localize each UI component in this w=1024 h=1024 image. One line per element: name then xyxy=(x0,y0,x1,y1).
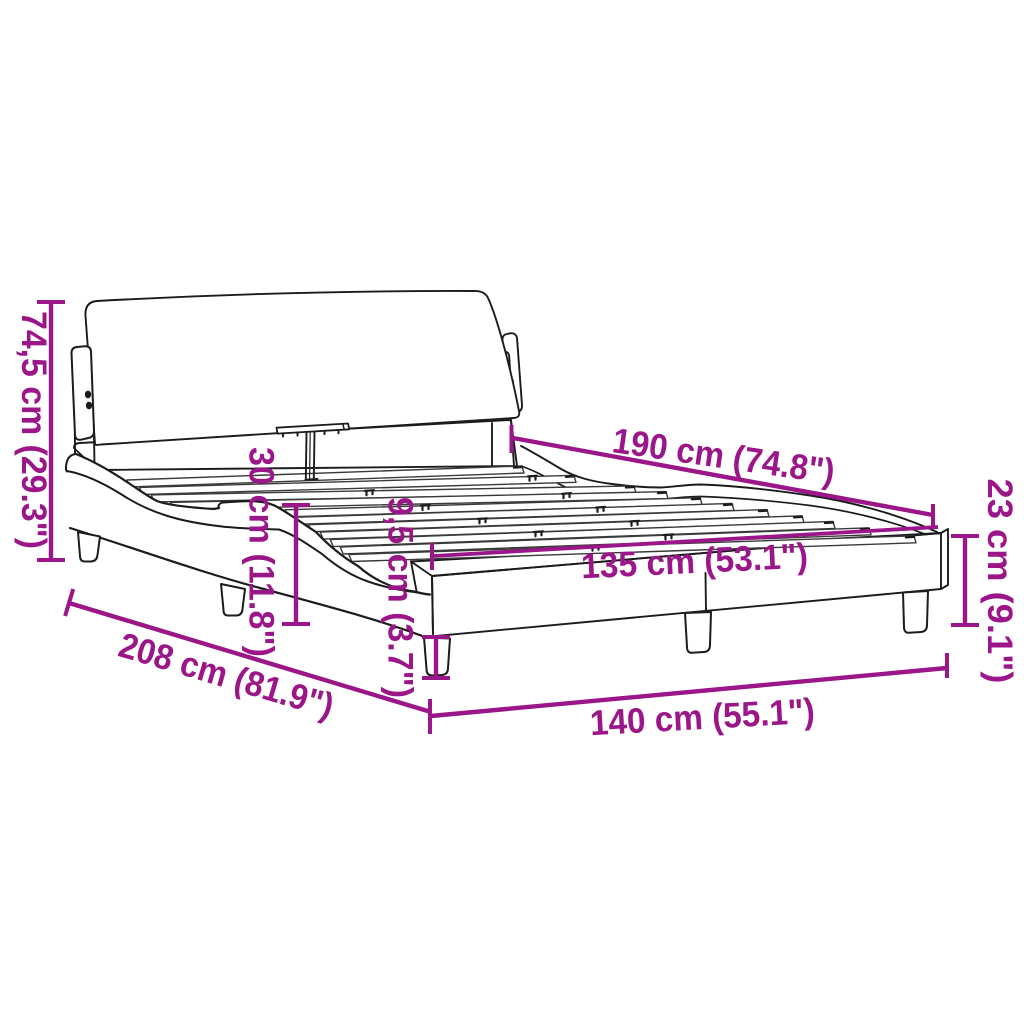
svg-text:23 cm (9.1"): 23 cm (9.1") xyxy=(980,479,1020,684)
svg-text:9,5 cm (3.7"): 9,5 cm (3.7") xyxy=(381,497,421,698)
svg-text:30 cm (11.8"): 30 cm (11.8") xyxy=(242,447,282,657)
svg-text:74,5 cm (29.3"): 74,5 cm (29.3") xyxy=(14,311,54,549)
